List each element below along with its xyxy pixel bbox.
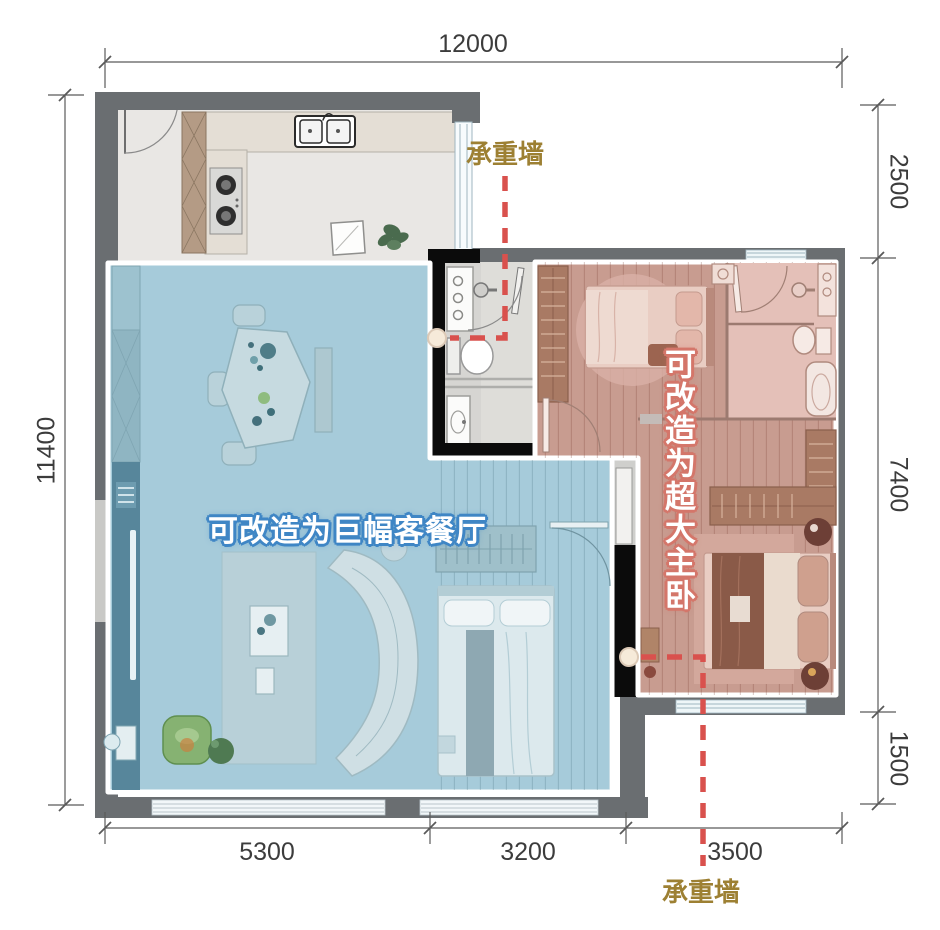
wall-marker-dot-bottom — [620, 648, 638, 666]
living-dining-note: 可改造为巨幅客餐厅 — [208, 506, 487, 550]
dimension-right-segment-2: 7400 — [884, 440, 913, 530]
master-bottom-window — [676, 700, 806, 713]
load-bearing-wall-label-top: 承重墙 — [466, 134, 544, 171]
master-bedroom-note: 可改造为超大主卧 — [655, 348, 700, 628]
dimension-bottom-segment-1: 5300 — [222, 838, 312, 867]
dimension-right-segment-1: 2500 — [884, 137, 913, 227]
dimension-right-segment-3: 1500 — [884, 714, 913, 804]
floor-plan-page: 12000 5300 3200 3500 11400 2500 7400 150… — [0, 0, 940, 930]
wall-marker-dot-top — [428, 329, 446, 347]
dimension-left-total: 11400 — [33, 406, 62, 496]
dimension-bottom-segment-2: 3200 — [483, 838, 573, 867]
dimension-top-total: 12000 — [428, 30, 518, 59]
load-bearing-wall-label-bottom: 承重墙 — [662, 872, 740, 909]
pocket-door-strip — [612, 458, 638, 550]
dimension-bottom-segment-3: 3500 — [690, 838, 780, 867]
master-top-window — [746, 250, 806, 261]
south-windows — [152, 800, 598, 815]
